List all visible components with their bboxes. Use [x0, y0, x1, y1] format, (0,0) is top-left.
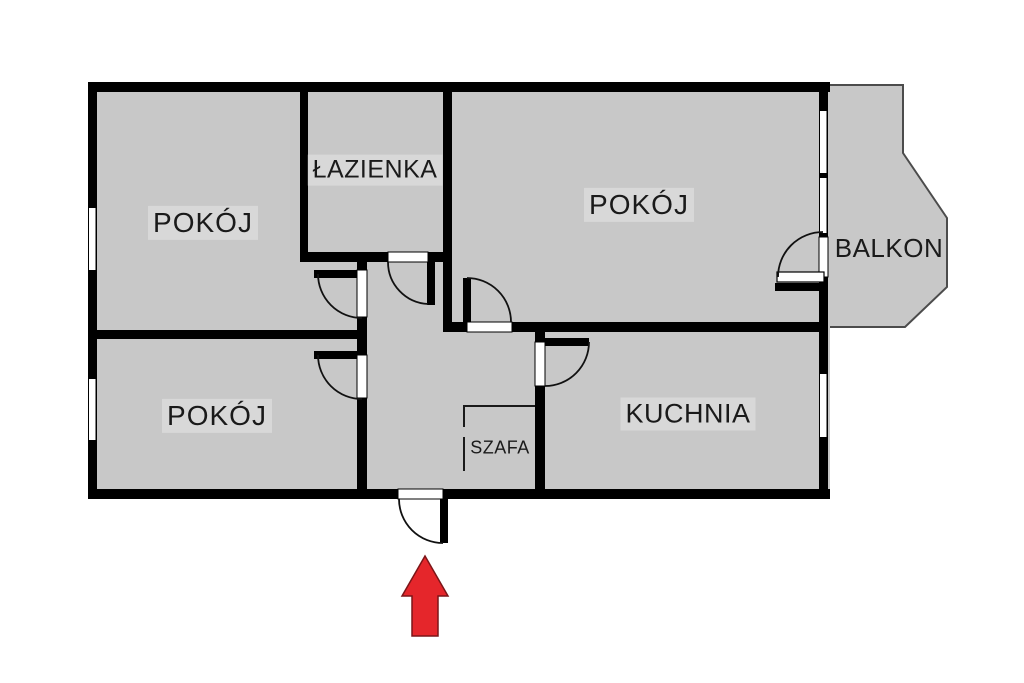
window-cap: [88, 440, 97, 445]
label-pokoj-top-right: POKÓJ: [584, 188, 694, 222]
label-kuchnia: KUCHNIA: [620, 397, 755, 430]
window-glass: [89, 376, 97, 444]
label-pokoj-top-left: POKÓJ: [148, 206, 258, 240]
door-opening: [467, 322, 512, 332]
label-pokoj-bottom-left: POKÓJ: [162, 399, 272, 433]
door-opening: [388, 252, 428, 262]
door-leaf: [314, 270, 357, 278]
wall-outer-top: [88, 82, 830, 92]
wall-outer-bottom: [88, 489, 830, 499]
window-cap: [88, 270, 97, 275]
floorplan-drawing: [0, 0, 1024, 683]
door-opening: [398, 489, 443, 499]
window-pokoj-bottom-left: [88, 374, 97, 445]
label-lazienka: ŁAZIENKA: [308, 155, 443, 186]
wall-pokoj-top-right-left: [443, 82, 452, 332]
window-glass: [820, 108, 828, 237]
window-cap: [88, 374, 97, 379]
balcony-outline: [828, 85, 947, 327]
door-swing-arc: [399, 499, 443, 543]
door-opening: [535, 342, 545, 386]
window-glass: [820, 371, 828, 441]
floorplan-canvas: POKÓJ ŁAZIENKA POKÓJ BALKON POKÓJ KUCHNI…: [0, 0, 1024, 683]
wall-rooms-divider-left: [88, 330, 367, 339]
window-pokoj-top-left: [88, 203, 97, 275]
building-footprint: [88, 82, 830, 499]
window-kuchnia: [819, 369, 828, 442]
door-leaf: [463, 278, 471, 322]
door-entrance: [398, 489, 448, 543]
window-cap: [819, 106, 828, 111]
label-balkon: BALKON: [830, 233, 949, 265]
door-leaf: [545, 338, 589, 346]
szafa-left-line-lower: [463, 437, 465, 471]
balcony-area: [828, 85, 947, 327]
door-opening: [357, 355, 367, 398]
label-szafa: SZAFA: [470, 438, 530, 459]
door-opening: [819, 237, 828, 277]
wall-lazienka-bottom: [300, 252, 452, 262]
window-cap: [819, 437, 828, 442]
window-cap: [88, 203, 97, 208]
door-leaf: [440, 499, 448, 543]
door-sill-stub: [775, 283, 822, 291]
door-leaf: [314, 351, 357, 359]
door-leaf: [427, 262, 435, 305]
window-balcony: [819, 106, 828, 238]
szafa-left-line-upper: [463, 407, 465, 427]
door-opening: [357, 270, 367, 317]
szafa-top-line: [463, 405, 538, 407]
window-cap: [819, 369, 828, 374]
window-glass: [89, 205, 97, 274]
door-leaf: [777, 272, 824, 282]
entrance-arrow: [402, 556, 448, 636]
window-divider: [819, 173, 828, 178]
